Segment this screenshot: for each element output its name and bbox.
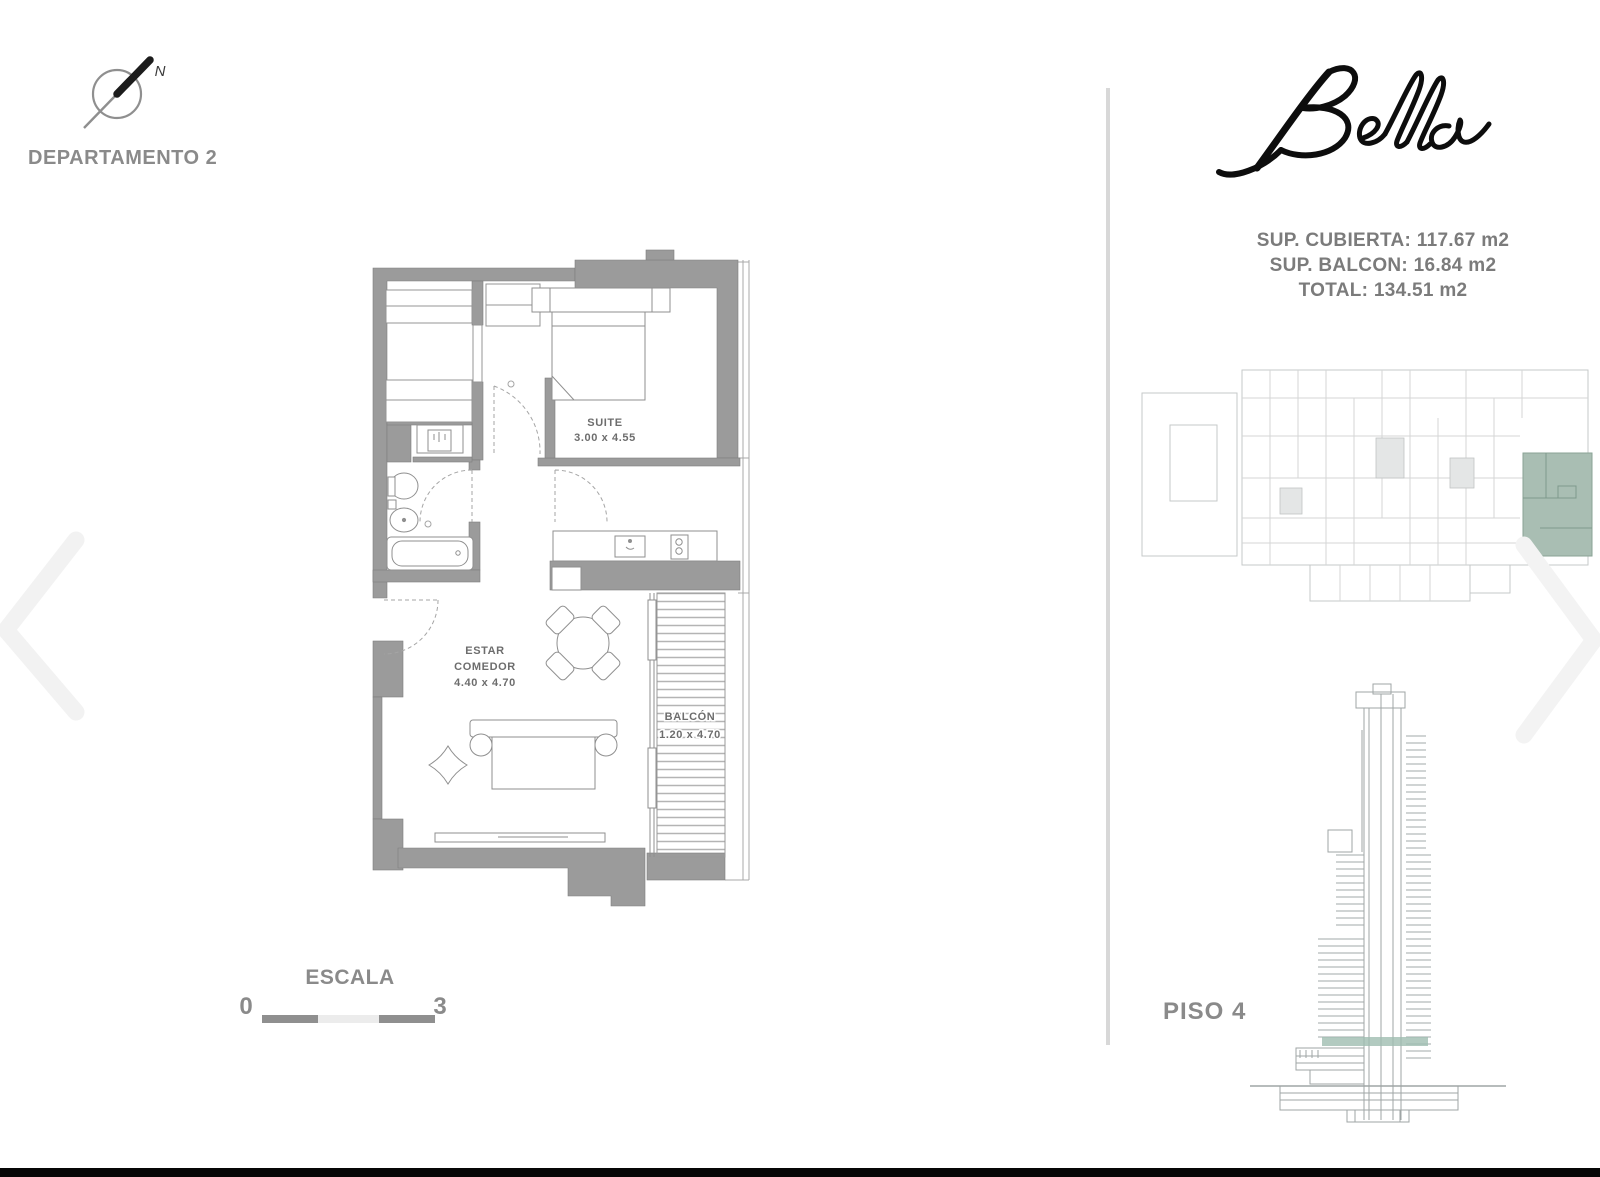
next-button[interactable] (1510, 520, 1600, 760)
bed (552, 312, 645, 400)
nightstand (652, 288, 670, 312)
prev-button[interactable] (0, 520, 90, 760)
balcony-label: BALCÓN (665, 710, 716, 723)
area-covered: SUP. CUBIERTA: 117.67 m2 (1166, 228, 1600, 253)
balcony-dims: 1.20 x 4.70 (659, 729, 721, 741)
balcony-fins-left-lower (1318, 934, 1364, 1040)
sofa-arm (470, 734, 492, 756)
floor-cushion (429, 746, 467, 784)
page-title: DEPARTAMENTO 2 (28, 147, 217, 170)
living-label-2: COMEDOR (454, 661, 516, 673)
bottom-bar (0, 1168, 1600, 1177)
balcony-fins-left-upper (1336, 852, 1364, 930)
closet-shelving (386, 284, 540, 422)
scale-segment (318, 1015, 379, 1023)
scale-min: 0 (234, 993, 258, 1021)
suite-label: SUITE (587, 417, 622, 429)
sofa-arm (595, 734, 617, 756)
balcony-fins-right-lower (1406, 852, 1431, 1060)
suite-dims: 3.00 x 4.55 (574, 432, 636, 444)
living-dims: 4.40 x 4.70 (454, 677, 516, 689)
north-arrow-icon: N (70, 42, 180, 152)
headboard (550, 288, 652, 312)
bella-logo: Bella (1205, 46, 1505, 194)
sofa-back (470, 720, 617, 737)
area-balcony: SUP. BALCON: 16.84 m2 (1166, 253, 1600, 278)
balcony-deck (657, 593, 725, 857)
suite-door (494, 386, 540, 454)
scale-segment (262, 1015, 318, 1023)
scale-segment (379, 1015, 435, 1023)
north-letter: N (155, 63, 166, 80)
floor-label: PISO 4 (1163, 998, 1246, 1026)
area-total: TOTAL: 134.51 m2 (1166, 278, 1600, 303)
bath-door (420, 470, 472, 522)
building-base (1250, 1048, 1506, 1122)
living-label-1: ESTAR (465, 645, 504, 657)
balcony-area (648, 593, 725, 857)
floorplan-brochure-page: { "title": { "unit": "DEPARTAMENTO 2" },… (0, 0, 1600, 1177)
area-summary: SUP. CUBIERTA: 117.67 m2 SUP. BALCON: 16… (1166, 228, 1600, 303)
living-furniture (429, 604, 622, 842)
scale-title: ESCALA (262, 966, 438, 990)
chevron-left-icon (0, 520, 90, 760)
kitchen-door (555, 470, 607, 522)
apartment-floor-plan: SUITE 3.00 x 4.55 ESTAR COMEDOR 4.40 x 4… (368, 248, 760, 908)
chevron-right-icon (1510, 520, 1600, 760)
key-plan-cores (1280, 438, 1474, 514)
nightstand (532, 288, 550, 312)
section-divider (1106, 88, 1110, 1045)
scale-bar (262, 1015, 435, 1023)
floor-4-band (1322, 1037, 1428, 1046)
kitchen-wall-opening (552, 567, 581, 590)
suite-furniture (532, 288, 670, 400)
sofa-seat (492, 737, 595, 789)
